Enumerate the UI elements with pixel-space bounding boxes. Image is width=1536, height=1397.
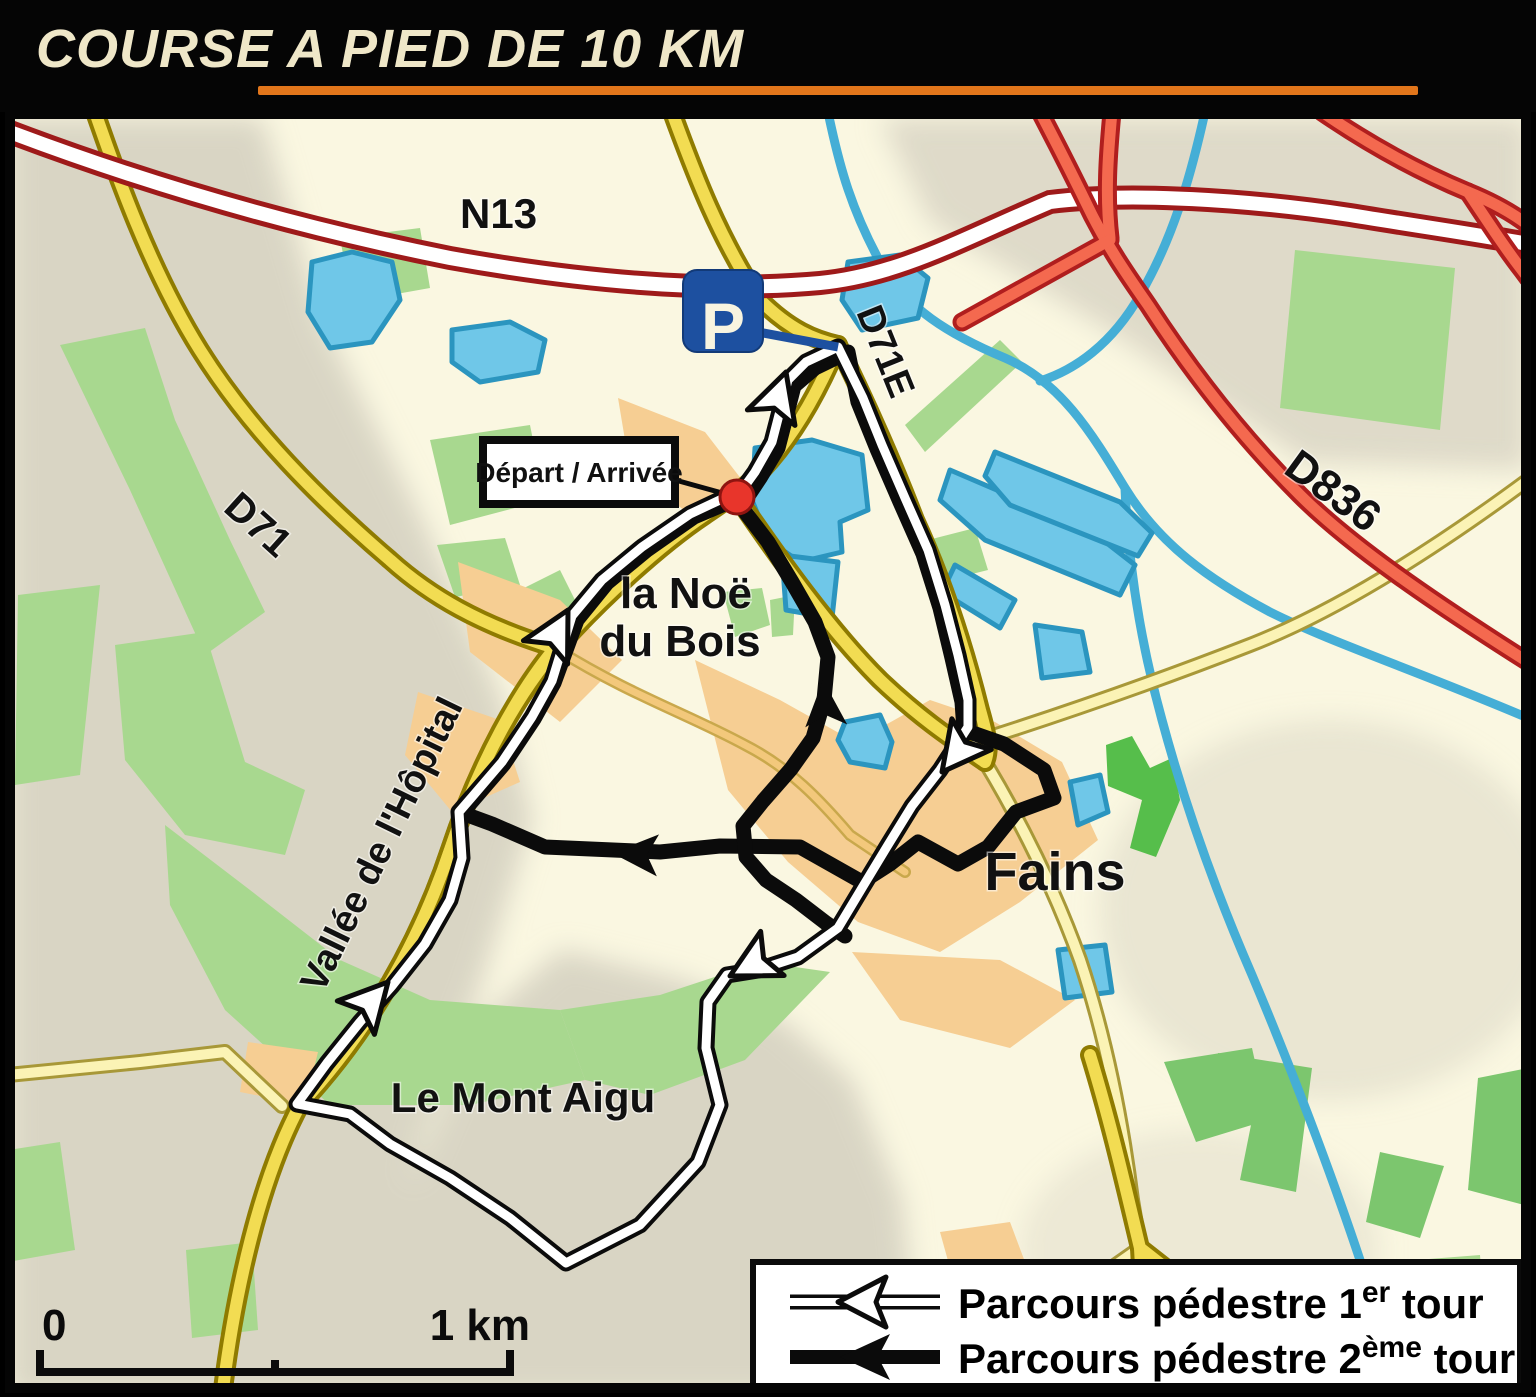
scale-zero-label: 0	[42, 1301, 66, 1350]
start-finish-dot	[720, 480, 754, 514]
title-bar: COURSE A PIED DE 10 KM	[0, 0, 1536, 112]
place-label-la-noe-line1: la Noë	[620, 569, 752, 618]
legend-label-first-tour: Parcours pédestre 1er tour	[958, 1276, 1484, 1327]
place-label-fains: Fains	[984, 842, 1125, 902]
place-label-le-mont-aigu: Le Mont Aigu	[391, 1074, 655, 1121]
parking-icon-letter: P	[701, 289, 745, 363]
scale-km-label: 1 km	[430, 1301, 530, 1350]
place-label-la-noe-line2: du Bois	[599, 617, 760, 666]
depart-label-text: Départ / Arrivée	[475, 457, 683, 488]
title-underline	[258, 86, 1418, 95]
road-label-n13: N13	[460, 190, 537, 237]
page-title: COURSE A PIED DE 10 KM	[36, 18, 744, 80]
legend: Parcours pédestre 1er tour Parcours péde…	[753, 1262, 1520, 1388]
course-map: N13 D71 D71E D836 la Noë du Bois Fains L…	[0, 0, 1536, 1397]
legend-label-second-tour: Parcours pédestre 2ème tour	[958, 1331, 1515, 1382]
race-map-page: COURSE A PIED DE 10 KM	[0, 0, 1536, 1397]
